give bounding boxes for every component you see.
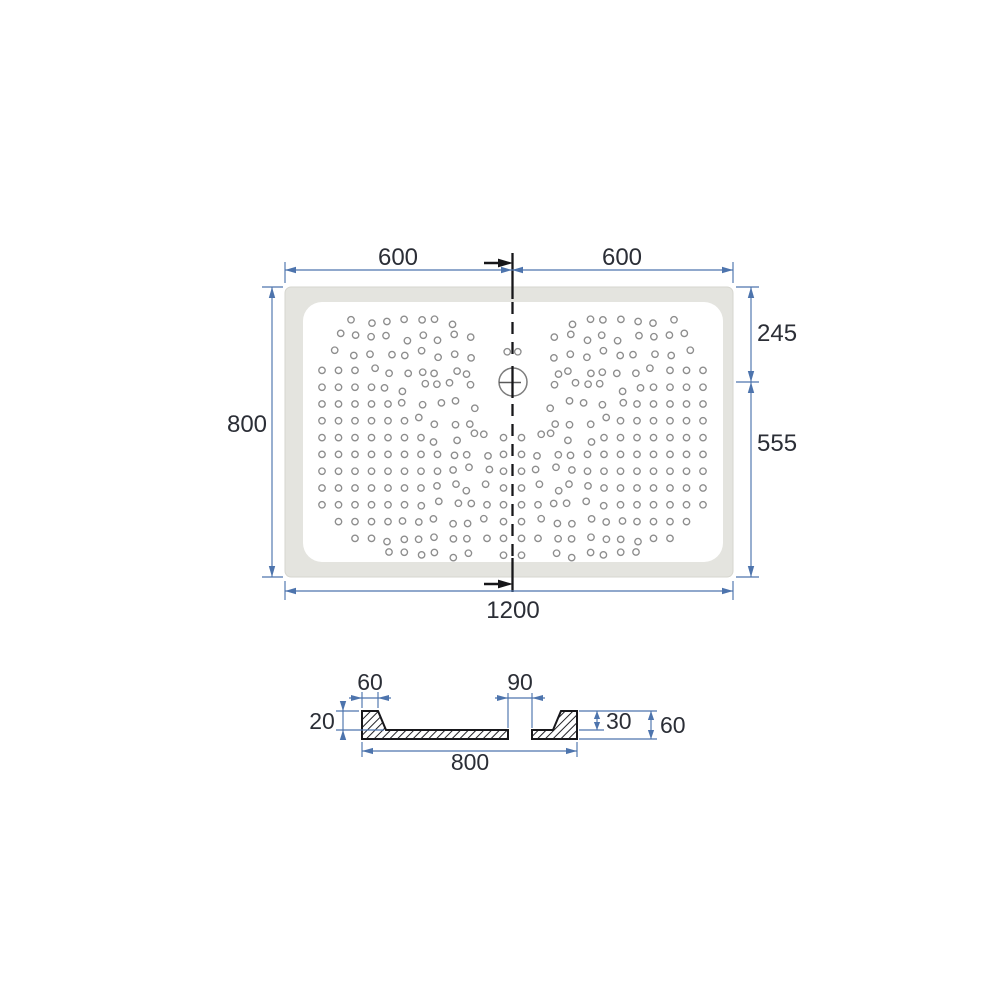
anti-slip-dot [683, 451, 689, 457]
anti-slip-dot [369, 320, 375, 326]
arrowhead [362, 748, 373, 754]
anti-slip-dot [683, 384, 689, 390]
anti-slip-dot [569, 521, 575, 527]
anti-slip-dot [587, 549, 593, 555]
anti-slip-dot [368, 384, 374, 390]
anti-slip-dot [634, 418, 640, 424]
anti-slip-dot [599, 402, 605, 408]
anti-slip-dot [536, 481, 542, 487]
anti-slip-dot [335, 401, 341, 407]
anti-slip-dot [464, 520, 470, 526]
anti-slip-dot [335, 367, 341, 373]
anti-slip-dot [431, 534, 437, 540]
anti-slip-dot [368, 468, 374, 474]
anti-slip-dot [600, 552, 606, 558]
anti-slip-dot [368, 518, 374, 524]
anti-slip-dot [518, 468, 524, 474]
anti-slip-dot [600, 317, 606, 323]
anti-slip-dot [601, 451, 607, 457]
anti-slip-dot [614, 338, 620, 344]
anti-slip-dot [518, 502, 524, 508]
anti-slip-dot [618, 536, 624, 542]
anti-slip-dot [599, 332, 605, 338]
anti-slip-dot [700, 451, 706, 457]
anti-slip-dot [486, 466, 492, 472]
anti-slip-dot [667, 418, 673, 424]
anti-slip-dot [352, 468, 358, 474]
anti-slip-dot [319, 384, 325, 390]
anti-slip-dot [450, 536, 456, 542]
anti-slip-dot [416, 519, 422, 525]
section-profile-left [362, 711, 508, 739]
section-profile-right [532, 711, 577, 739]
anti-slip-dot [484, 502, 490, 508]
anti-slip-dot [319, 468, 325, 474]
anti-slip-dot [700, 434, 706, 440]
anti-slip-dot [634, 434, 640, 440]
anti-slip-dot [603, 536, 609, 542]
anti-slip-dot [335, 384, 341, 390]
anti-slip-dot [484, 535, 490, 541]
arrowhead [594, 722, 600, 730]
anti-slip-dot [584, 468, 590, 474]
anti-slip-dot [319, 451, 325, 457]
anti-slip-dot [700, 502, 706, 508]
arrowhead [722, 267, 733, 273]
anti-slip-dot [700, 485, 706, 491]
dim-label-rim-lip-height: 20 [309, 708, 335, 734]
anti-slip-dot [471, 430, 477, 436]
anti-slip-dot [418, 503, 424, 509]
anti-slip-dot [464, 536, 470, 542]
anti-slip-dot [620, 400, 626, 406]
anti-slip-dot [700, 401, 706, 407]
anti-slip-dot [434, 468, 440, 474]
arrowhead [378, 695, 389, 701]
anti-slip-dot [368, 434, 374, 440]
anti-slip-dot [352, 367, 358, 373]
anti-slip-dot [667, 468, 673, 474]
anti-slip-dot [585, 381, 591, 387]
anti-slip-dot [415, 536, 421, 542]
anti-slip-dot [335, 434, 341, 440]
anti-slip-dot [580, 400, 586, 406]
anti-slip-dot [481, 516, 487, 522]
anti-slip-dot [668, 352, 674, 358]
anti-slip-dot [565, 437, 571, 443]
anti-slip-dot [352, 451, 358, 457]
anti-slip-dot [618, 316, 624, 322]
anti-slip-dot [515, 349, 521, 355]
anti-slip-dot [464, 452, 470, 458]
anti-slip-dot [352, 485, 358, 491]
anti-slip-dot [619, 388, 625, 394]
anti-slip-dot [454, 368, 460, 374]
anti-slip-dot [683, 502, 689, 508]
anti-slip-dot [385, 434, 391, 440]
anti-slip-dot [566, 398, 572, 404]
anti-slip-dot [453, 481, 459, 487]
anti-slip-dot [431, 370, 437, 376]
anti-slip-dot [569, 467, 575, 473]
anti-slip-dot [667, 535, 673, 541]
anti-slip-dot [389, 351, 395, 357]
anti-slip-dot [418, 552, 424, 558]
anti-slip-dot [683, 367, 689, 373]
anti-slip-dot [601, 434, 607, 440]
anti-slip-dot [588, 534, 594, 540]
anti-slip-dot [335, 518, 341, 524]
anti-slip-dot [650, 451, 656, 457]
anti-slip-dot [617, 418, 623, 424]
anti-slip-dot [617, 468, 623, 474]
anti-slip-dot [420, 369, 426, 375]
anti-slip-dot [518, 552, 524, 558]
anti-slip-dot [430, 516, 436, 522]
anti-slip-dot [401, 536, 407, 542]
anti-slip-dot [368, 451, 374, 457]
anti-slip-dot [338, 330, 344, 336]
anti-slip-dot [569, 321, 575, 327]
anti-slip-dot [319, 418, 325, 424]
anti-slip-dot [451, 452, 457, 458]
anti-slip-dot [504, 349, 510, 355]
anti-slip-dot [683, 434, 689, 440]
dim-right-drain-offsets: 245 555 [736, 287, 797, 577]
anti-slip-dot [635, 538, 641, 544]
anti-slip-dot [583, 498, 589, 504]
anti-slip-dot [650, 485, 656, 491]
anti-slip-dot [634, 401, 640, 407]
anti-slip-dot [348, 317, 354, 323]
anti-slip-dot [434, 451, 440, 457]
arrowhead [269, 287, 275, 298]
anti-slip-dot [335, 502, 341, 508]
dim-section-width: 800 [362, 742, 577, 775]
anti-slip-dot [399, 388, 405, 394]
anti-slip-dot [683, 468, 689, 474]
anti-slip-dot [399, 400, 405, 406]
dim-label-total-height: 60 [660, 712, 686, 738]
anti-slip-dot [566, 481, 572, 487]
anti-slip-dot [634, 502, 640, 508]
anti-slip-dot [538, 431, 544, 437]
anti-slip-dot [352, 434, 358, 440]
anti-slip-dot [551, 355, 557, 361]
anti-slip-dot [636, 332, 642, 338]
anti-slip-dot [385, 451, 391, 457]
anti-slip-dot [468, 355, 474, 361]
anti-slip-dot [418, 451, 424, 457]
anti-slip-dot [386, 549, 392, 555]
anti-slip-dot [404, 338, 410, 344]
anti-slip-dot [351, 352, 357, 358]
anti-slip-dot [535, 535, 541, 541]
anti-slip-dot [420, 332, 426, 338]
anti-slip-dot [335, 451, 341, 457]
anti-slip-dot [422, 381, 428, 387]
arrowhead [497, 695, 508, 701]
anti-slip-dot [634, 451, 640, 457]
dim-total-height: 60 [579, 711, 686, 739]
anti-slip-dot [319, 485, 325, 491]
anti-slip-dot [600, 348, 606, 354]
anti-slip-dot [399, 518, 405, 524]
anti-slip-dot [450, 554, 456, 560]
anti-slip-dot [352, 518, 358, 524]
anti-slip-dot [319, 502, 325, 508]
anti-slip-dot [401, 549, 407, 555]
anti-slip-dot [386, 370, 392, 376]
arrowhead [501, 267, 512, 273]
anti-slip-dot [634, 485, 640, 491]
arrowhead [722, 588, 733, 594]
anti-slip-dot [500, 451, 506, 457]
anti-slip-dot [555, 371, 561, 377]
anti-slip-dot [368, 485, 374, 491]
anti-slip-dot [588, 516, 594, 522]
anti-slip-dot [401, 502, 407, 508]
anti-slip-dot [568, 331, 574, 337]
anti-slip-dot [563, 500, 569, 506]
anti-slip-dot [666, 332, 672, 338]
arrowhead [340, 701, 346, 711]
anti-slip-dot [463, 371, 469, 377]
arrowhead [285, 267, 296, 273]
anti-slip-dot [401, 468, 407, 474]
anti-slip-dot [434, 381, 440, 387]
anti-slip-dot [617, 352, 623, 358]
technical-drawing: 600 600 800 245 555 [0, 0, 1000, 1000]
anti-slip-dot [518, 518, 524, 524]
anti-slip-dot [468, 334, 474, 340]
anti-slip-dot [603, 414, 609, 420]
dim-bottom-total-width: 1200 [285, 581, 733, 624]
anti-slip-dot [467, 421, 473, 427]
anti-slip-dot [352, 535, 358, 541]
anti-slip-dot [518, 535, 524, 541]
anti-slip-dot [465, 550, 471, 556]
anti-slip-dot [637, 385, 643, 391]
anti-slip-dot [601, 468, 607, 474]
anti-slip-dot [385, 485, 391, 491]
anti-slip-dot [617, 451, 623, 457]
anti-slip-dot [667, 485, 673, 491]
anti-slip-dot [335, 468, 341, 474]
anti-slip-dot [335, 418, 341, 424]
dim-left-depth: 800 [227, 287, 283, 577]
anti-slip-dot [687, 347, 693, 353]
anti-slip-dot [419, 317, 425, 323]
anti-slip-dot [384, 318, 390, 324]
anti-slip-dot [481, 431, 487, 437]
anti-slip-dot [452, 351, 458, 357]
anti-slip-dot [554, 520, 560, 526]
anti-slip-dot [383, 332, 389, 338]
anti-slip-dot [500, 552, 506, 558]
anti-slip-dot [553, 550, 559, 556]
dim-drain-opening: 90 [495, 669, 545, 728]
anti-slip-dot [468, 500, 474, 506]
anti-slip-dot [482, 481, 488, 487]
arrowhead [748, 382, 754, 393]
anti-slip-dot [385, 518, 391, 524]
anti-slip-dot [535, 502, 541, 508]
anti-slip-dot [681, 330, 687, 336]
anti-slip-dot [553, 464, 559, 470]
anti-slip-dot [435, 354, 441, 360]
anti-slip-dot [551, 334, 557, 340]
anti-slip-dot [367, 351, 373, 357]
anti-slip-dot [319, 434, 325, 440]
arrowhead [285, 588, 296, 594]
anti-slip-dot [500, 535, 506, 541]
arrowhead [748, 371, 754, 382]
dim-label-width-right-half: 600 [602, 244, 642, 271]
anti-slip-dot [650, 502, 656, 508]
anti-slip-dot [431, 421, 437, 427]
anti-slip-dot [588, 439, 594, 445]
anti-slip-dot [405, 370, 411, 376]
anti-slip-dot [472, 405, 478, 411]
dim-rim-top-width: 60 [349, 669, 391, 708]
anti-slip-dot [450, 521, 456, 527]
anti-slip-dot [446, 380, 452, 386]
dim-label-drain-opening: 90 [507, 669, 533, 695]
arrowhead [648, 711, 654, 720]
anti-slip-dot [569, 554, 575, 560]
anti-slip-dot [500, 468, 506, 474]
anti-slip-dot [650, 518, 656, 524]
anti-slip-dot [700, 384, 706, 390]
anti-slip-dot [601, 485, 607, 491]
anti-slip-dot [588, 421, 594, 427]
anti-slip-dot [683, 418, 689, 424]
anti-slip-dot [555, 452, 561, 458]
anti-slip-dot [518, 485, 524, 491]
anti-slip-dot [650, 320, 656, 326]
dim-label-depth: 800 [227, 411, 267, 438]
anti-slip-dot [335, 485, 341, 491]
anti-slip-dot [431, 549, 437, 555]
anti-slip-dot [567, 452, 573, 458]
anti-slip-dot [547, 405, 553, 411]
anti-slip-dot [650, 401, 656, 407]
anti-slip-dot [401, 485, 407, 491]
anti-slip-dot [667, 502, 673, 508]
anti-slip-dot [319, 401, 325, 407]
anti-slip-dot [599, 369, 605, 375]
anti-slip-dot [617, 502, 623, 508]
anti-slip-dot [402, 352, 408, 358]
anti-slip-dot [385, 468, 391, 474]
anti-slip-dot [418, 485, 424, 491]
anti-slip-dot [700, 367, 706, 373]
anti-slip-dot [466, 464, 472, 470]
anti-slip-dot [572, 380, 578, 386]
anti-slip-dot [633, 549, 639, 555]
anti-slip-dot [650, 418, 656, 424]
anti-slip-dot [683, 401, 689, 407]
anti-slip-dot [634, 518, 640, 524]
anti-slip-dot [547, 430, 553, 436]
arrowhead [269, 566, 275, 577]
dim-label-rim-top-width: 60 [357, 669, 383, 695]
anti-slip-dot [500, 502, 506, 508]
anti-slip-dot [434, 337, 440, 343]
anti-slip-dot [584, 354, 590, 360]
anti-slip-dot [538, 516, 544, 522]
anti-slip-dot [418, 434, 424, 440]
cut-arrow-top-icon [498, 259, 513, 268]
anti-slip-dot [352, 418, 358, 424]
anti-slip-dot [566, 422, 572, 428]
anti-slip-dot [534, 453, 540, 459]
anti-slip-dot [683, 485, 689, 491]
anti-slip-dot [401, 418, 407, 424]
anti-slip-dot [384, 538, 390, 544]
anti-slip-dot [551, 500, 557, 506]
anti-slip-dot [368, 502, 374, 508]
anti-slip-dot [650, 384, 656, 390]
arrowhead [340, 730, 346, 740]
anti-slip-dot [667, 367, 673, 373]
anti-slip-dot [603, 519, 609, 525]
anti-slip-dot [352, 384, 358, 390]
anti-slip-dot [385, 418, 391, 424]
anti-slip-dot [667, 518, 673, 524]
section-view: 60 90 20 30 [309, 669, 685, 775]
anti-slip-dot [372, 365, 378, 371]
anti-slip-dot [434, 483, 440, 489]
dim-label-inner-depth: 30 [606, 708, 632, 734]
anti-slip-dot [419, 402, 425, 408]
anti-slip-dot [651, 334, 657, 340]
top-view: 600 600 800 245 555 [227, 244, 797, 624]
anti-slip-dot [518, 451, 524, 457]
anti-slip-dot [667, 401, 673, 407]
anti-slip-dot [585, 483, 591, 489]
anti-slip-dot [556, 488, 562, 494]
anti-slip-dot [617, 434, 623, 440]
anti-slip-dot [352, 332, 358, 338]
anti-slip-dot [667, 384, 673, 390]
anti-slip-dot [597, 381, 603, 387]
anti-slip-dot [633, 370, 639, 376]
anti-slip-dot [552, 421, 558, 427]
anti-slip-dot [588, 370, 594, 376]
anti-slip-dot [401, 451, 407, 457]
anti-slip-dot [431, 316, 437, 322]
anti-slip-dot [587, 316, 593, 322]
anti-slip-dot [463, 488, 469, 494]
anti-slip-dot [568, 536, 574, 542]
anti-slip-dot [617, 485, 623, 491]
anti-slip-dot [619, 518, 625, 524]
arrowhead [566, 748, 577, 754]
arrowhead [648, 730, 654, 739]
anti-slip-dot [683, 518, 689, 524]
anti-slip-dot [618, 549, 624, 555]
anti-slip-dot [485, 453, 491, 459]
anti-slip-dot [671, 317, 677, 323]
dim-label-drain-offset-bottom: 555 [757, 430, 797, 457]
anti-slip-dot [700, 468, 706, 474]
anti-slip-dot [647, 365, 653, 371]
anti-slip-dot [401, 434, 407, 440]
anti-slip-dot [452, 398, 458, 404]
anti-slip-dot [630, 351, 636, 357]
